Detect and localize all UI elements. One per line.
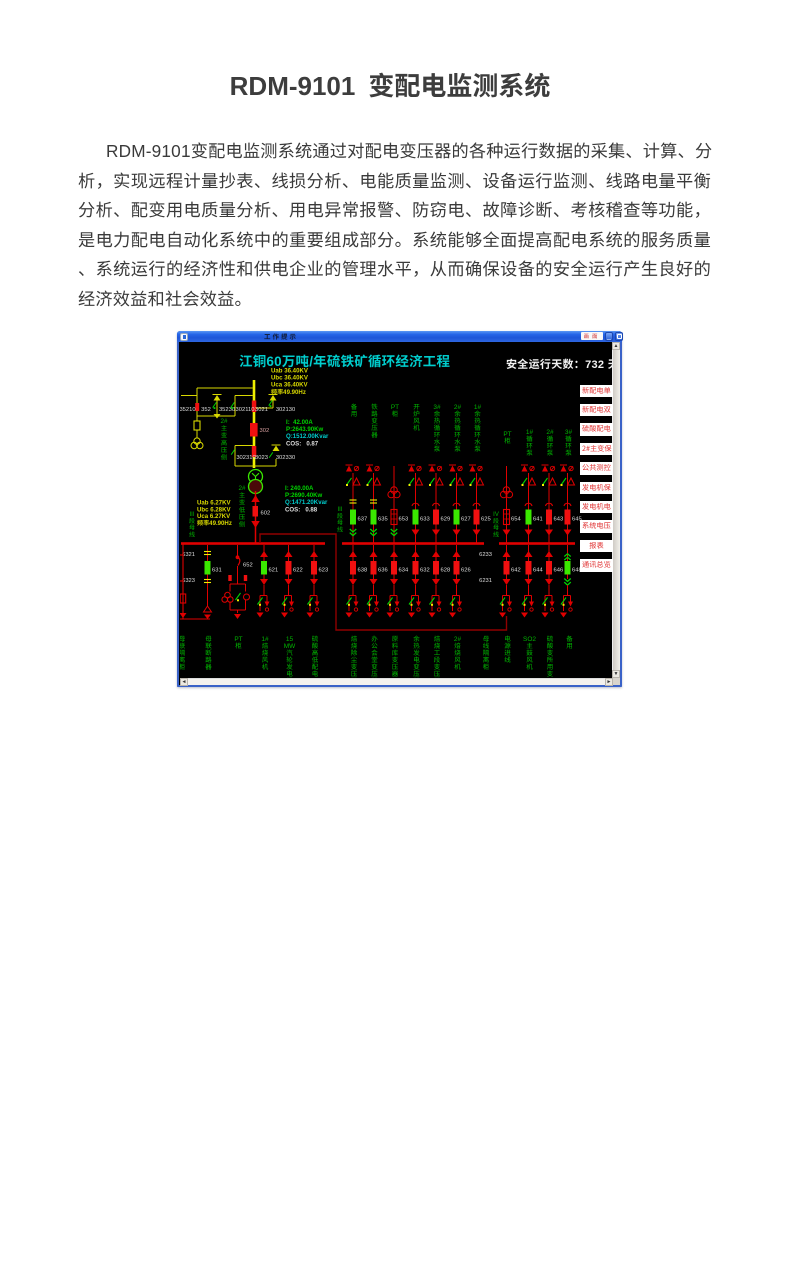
- svg-text:352: 352: [201, 407, 211, 413]
- svg-text:I: 42.00A: I: 42.00A: [286, 419, 313, 426]
- svg-text:632: 632: [420, 568, 430, 574]
- svg-text:PT柜: PT柜: [503, 431, 511, 445]
- svg-text:备用: 备用: [351, 403, 358, 418]
- svg-text:654: 654: [511, 517, 521, 523]
- svg-text:III段母线: III段母线: [337, 507, 343, 533]
- svg-text:623: 623: [319, 568, 329, 574]
- svg-text:I: 240.00A: I: 240.00A: [285, 485, 314, 492]
- svg-text:Uab 36.40KV: Uab 36.40KV: [271, 368, 309, 375]
- svg-text:631: 631: [212, 568, 222, 574]
- svg-text:SO2主鼓风机: SO2主鼓风机: [523, 636, 536, 671]
- svg-text:302310: 302310: [236, 455, 255, 461]
- svg-text:频率49.90Hz: 频率49.90Hz: [197, 519, 232, 527]
- svg-text:PT柜: PT柜: [234, 636, 242, 650]
- svg-text:652: 652: [243, 563, 253, 569]
- svg-text:1#余热循环水泵: 1#余热循环水泵: [474, 404, 482, 453]
- svg-text:余热发电变压器: 余热发电变压器: [413, 635, 420, 678]
- svg-text:629: 629: [441, 517, 451, 523]
- svg-text:频率49.90Hz: 频率49.90Hz: [271, 388, 306, 396]
- svg-text:6233: 6233: [479, 552, 492, 558]
- svg-text:636: 636: [378, 568, 388, 574]
- svg-text:302130: 302130: [276, 407, 295, 413]
- svg-text:622: 622: [293, 568, 303, 574]
- svg-text:638: 638: [358, 568, 368, 574]
- svg-text:硫酸变所用变: 硫酸变所用变: [547, 635, 554, 678]
- svg-text:634: 634: [399, 568, 409, 574]
- svg-text:母联隔离柜: 母联隔离柜: [180, 635, 186, 671]
- svg-text:2#循环泵: 2#循环泵: [546, 429, 554, 457]
- svg-text:焙烧除尘变压器: 焙烧除尘变压器: [351, 635, 358, 678]
- svg-text:627: 627: [461, 517, 471, 523]
- svg-text:641: 641: [533, 517, 543, 523]
- svg-text:1#焙烧风机: 1#焙烧风机: [261, 636, 269, 671]
- svg-text:302110: 302110: [236, 407, 255, 413]
- svg-text:3021: 3021: [255, 407, 268, 413]
- svg-text:Q:1471.20Kvar: Q:1471.20Kvar: [285, 499, 328, 506]
- svg-text:2#余热循环水泵: 2#余热循环水泵: [454, 404, 462, 453]
- svg-text:626: 626: [461, 568, 471, 574]
- svg-text:焙烧工段变压器: 焙烧工段变压器: [434, 635, 441, 678]
- svg-text:15MW汽轮发电机: 15MW汽轮发电机: [284, 636, 296, 678]
- svg-text:安全运行天数：732 天: 安全运行天数：732 天: [506, 358, 613, 371]
- svg-text:IV段母线: IV段母线: [493, 512, 499, 538]
- svg-text:COS: 0.88: COS: 0.88: [285, 506, 318, 513]
- svg-text:625: 625: [481, 517, 491, 523]
- svg-text:办公会堂变压器: 办公会堂变压器: [371, 635, 378, 678]
- svg-text:646: 646: [554, 568, 564, 574]
- svg-text:621: 621: [269, 568, 279, 574]
- svg-text:2#主变高压侧: 2#主变高压侧: [220, 418, 228, 462]
- svg-text:643: 643: [554, 517, 564, 523]
- svg-text:302: 302: [260, 428, 270, 434]
- svg-text:642: 642: [511, 568, 521, 574]
- svg-text:备用: 备用: [566, 635, 573, 650]
- svg-text:III段母线: III段母线: [189, 512, 195, 538]
- svg-text:2#主变低压侧: 2#主变低压侧: [238, 485, 246, 529]
- svg-text:635: 635: [378, 517, 388, 523]
- svg-text:母线隔离柜: 母线隔离柜: [483, 635, 490, 671]
- svg-text:644: 644: [533, 568, 543, 574]
- svg-text:Uca 36.40KV: Uca 36.40KV: [271, 382, 309, 389]
- svg-text:3#余热循环水泵: 3#余热循环水泵: [433, 404, 441, 453]
- svg-text:P:2690.40Kw: P:2690.40Kw: [285, 492, 323, 499]
- svg-text:6321: 6321: [182, 552, 195, 558]
- svg-text:628: 628: [441, 568, 451, 574]
- svg-text:COS: 0.87: COS: 0.87: [286, 440, 319, 447]
- svg-text:2#焙烧风机: 2#焙烧风机: [454, 636, 462, 671]
- svg-text:653: 653: [399, 517, 409, 523]
- svg-text:3023: 3023: [255, 455, 268, 461]
- svg-text:633: 633: [420, 517, 430, 523]
- svg-text:302330: 302330: [276, 455, 295, 461]
- svg-text:硫酸高低配电: 硫酸高低配电: [312, 635, 319, 678]
- svg-text:PT柜: PT柜: [391, 404, 399, 418]
- svg-text:电源进线: 电源进线: [504, 635, 511, 664]
- svg-text:6231: 6231: [479, 578, 492, 584]
- svg-text:6323: 6323: [182, 578, 195, 584]
- svg-text:母联断路器: 母联断路器: [205, 635, 212, 671]
- svg-text:Q:1512.00Kvar: Q:1512.00Kvar: [286, 433, 329, 440]
- svg-text:602: 602: [261, 511, 271, 517]
- svg-text:Ubc 36.40KV: Ubc 36.40KV: [271, 375, 309, 382]
- svg-text:35210: 35210: [180, 407, 196, 413]
- svg-text:铁路变压器: 铁路变压器: [371, 403, 378, 439]
- svg-text:637: 637: [358, 517, 368, 523]
- svg-text:P:2643.90Kw: P:2643.90Kw: [286, 426, 324, 433]
- svg-text:开炉风机: 开炉风机: [413, 403, 420, 432]
- svg-text:原料库变压器: 原料库变压器: [392, 635, 399, 678]
- svg-text:1#循环泵: 1#循环泵: [526, 429, 534, 457]
- svg-text:3#循环泵: 3#循环泵: [565, 429, 573, 457]
